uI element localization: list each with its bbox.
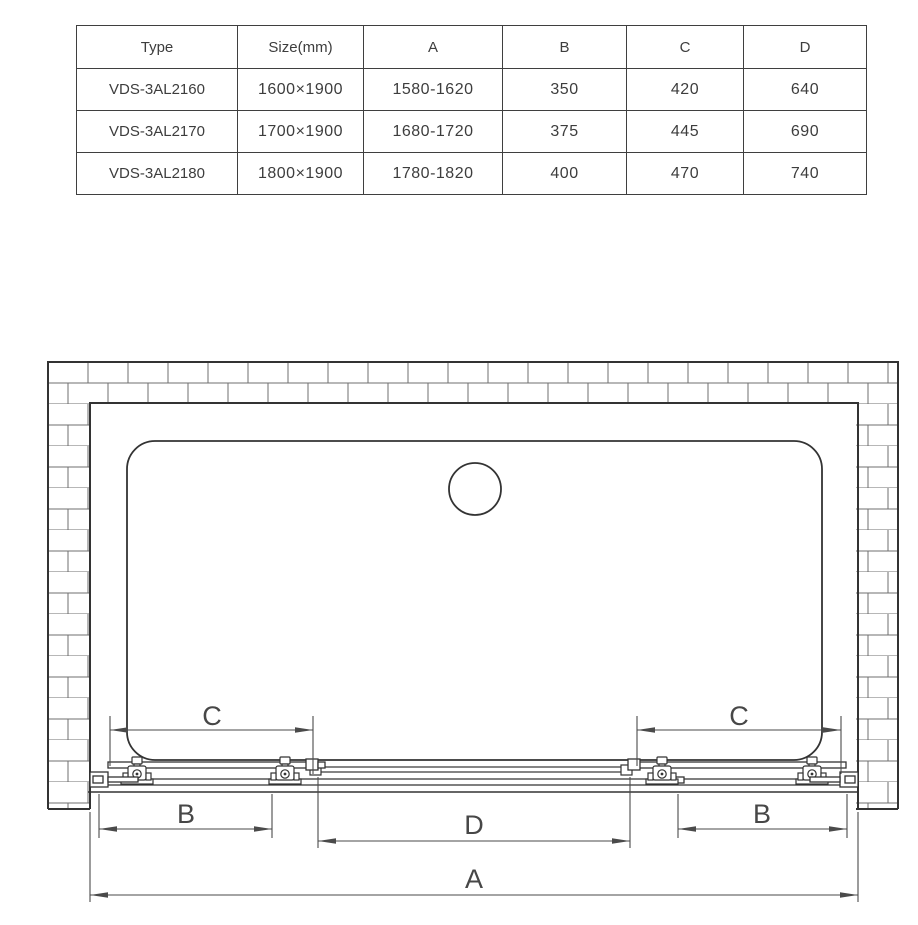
dimension-label-b-right: B bbox=[753, 799, 771, 829]
dimension-label-c-left: C bbox=[202, 701, 222, 731]
dimension-label-c-right: C bbox=[729, 701, 749, 731]
door-rails bbox=[88, 779, 858, 792]
door-roller-icon bbox=[269, 757, 301, 784]
drain-circle bbox=[449, 463, 501, 515]
wall-right bbox=[856, 403, 898, 809]
technical-drawing: C C B B D A bbox=[0, 0, 918, 925]
wall-left bbox=[48, 403, 90, 809]
dimension-label-b-left: B bbox=[177, 799, 195, 829]
left-sliding-door bbox=[108, 757, 325, 784]
wall-top bbox=[48, 362, 898, 403]
dimension-label-a: A bbox=[465, 864, 483, 894]
door-roller-icon bbox=[646, 757, 678, 784]
dimension-label-d: D bbox=[464, 810, 484, 840]
technical-sheet: Type Size(mm) A B C D VDS-3AL2160 1600×1… bbox=[0, 0, 918, 925]
center-fixed-panel bbox=[310, 765, 632, 775]
